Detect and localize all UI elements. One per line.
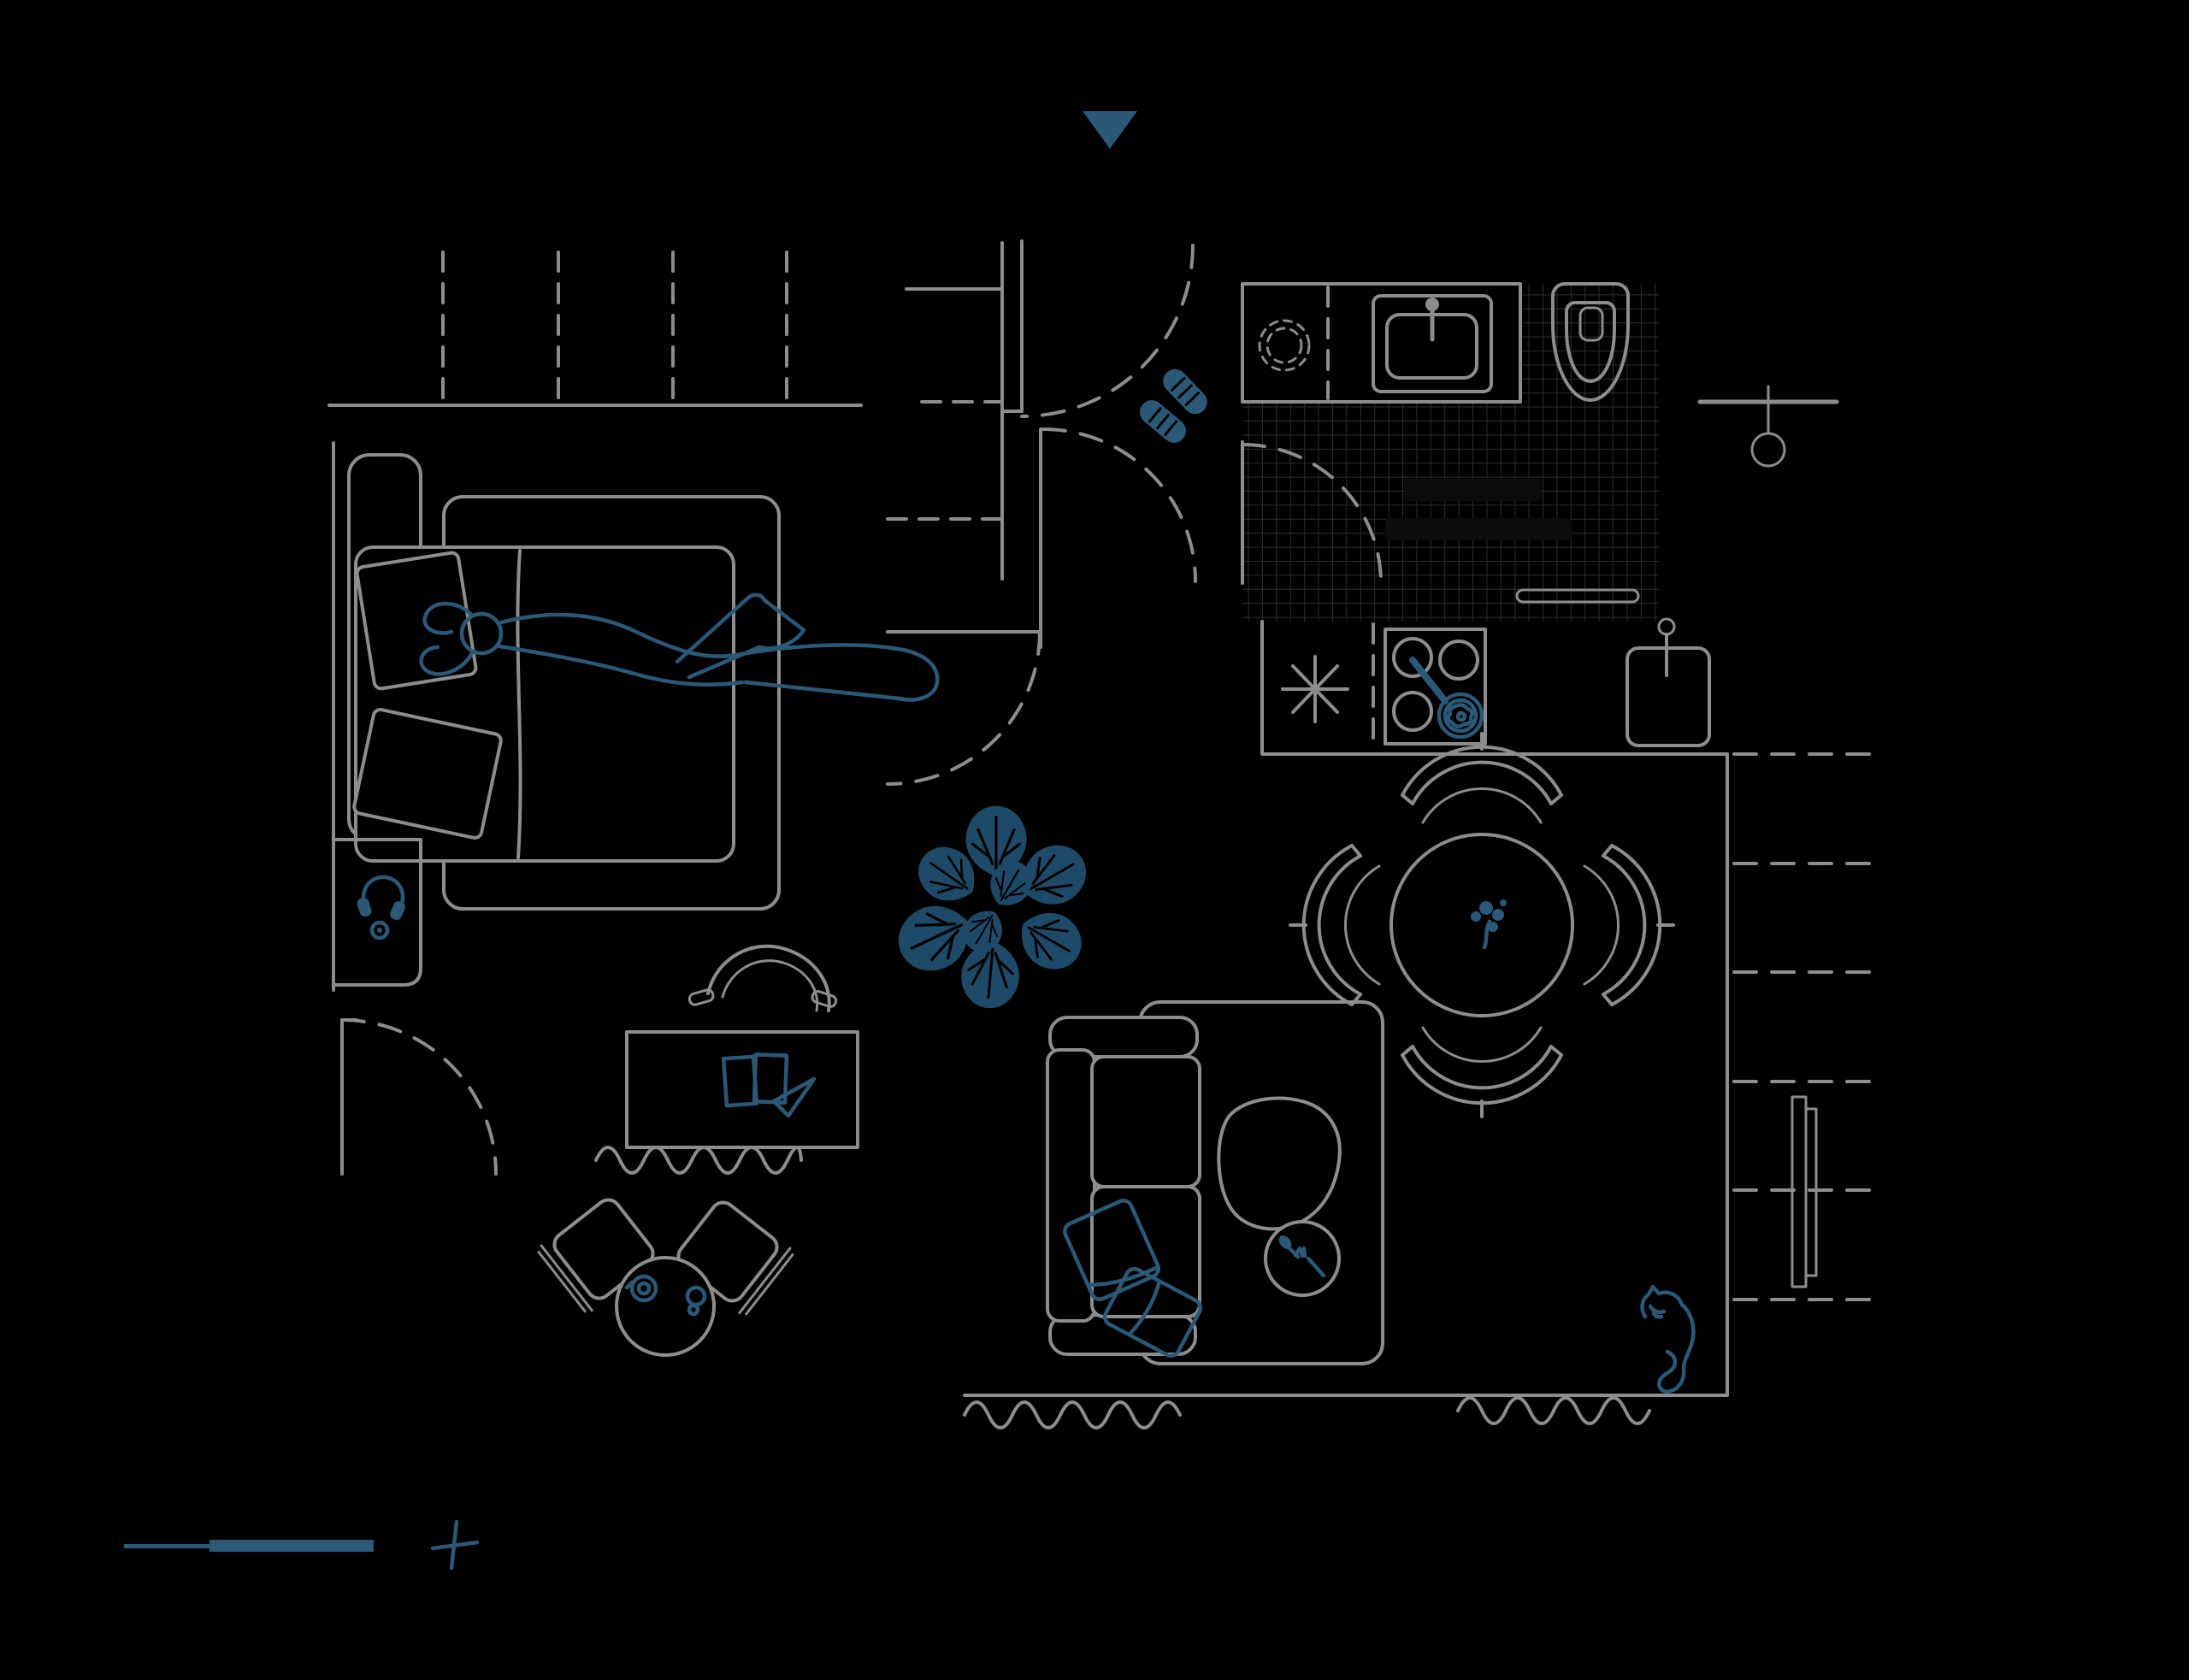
cat-icon: [1643, 1287, 1694, 1392]
plus-marker-icon: [433, 1522, 477, 1568]
faint-label-marks: [1404, 479, 1541, 501]
vanity-counter: [1242, 284, 1520, 402]
monstera-plant-icon: [888, 806, 1096, 1011]
floor-plan-drawing: Studio apartment floor plan - top view l…: [0, 0, 2189, 1680]
sofa: [1047, 1017, 1200, 1354]
entry-closet-shelves: [888, 289, 1002, 519]
scale-bar: [124, 1540, 374, 1552]
wardrobe-dashed-dividers: [329, 252, 861, 405]
breakfast-corner: [537, 1193, 795, 1355]
entrance-marker-icon: [1083, 111, 1137, 149]
cafe-table: [617, 1258, 714, 1355]
kitchen: [1262, 619, 1727, 754]
entry-wall: [1002, 241, 1041, 647]
desk: [627, 1032, 858, 1147]
dining-chair-east: [1584, 846, 1673, 1005]
slippers-icon: [1135, 364, 1212, 448]
floor-plan-canvas: Studio apartment floor plan - top view l…: [0, 0, 2189, 1680]
dining-area: [1290, 734, 1673, 1117]
bathroom: [1242, 284, 1837, 622]
bed: [353, 547, 734, 861]
dining-chair-south: [1402, 1028, 1561, 1117]
coffee-table: [1218, 1098, 1340, 1229]
dining-chair-west: [1290, 846, 1379, 1005]
living-area: [1047, 1002, 1383, 1364]
faint-label-marks: [1385, 518, 1572, 540]
side-table: [1266, 1222, 1339, 1295]
headphones-icon: [356, 877, 407, 938]
bedroom-door-swing-icon: [342, 1020, 496, 1174]
bedroom-furniture: [335, 455, 937, 985]
dining-table: [1391, 834, 1572, 1016]
desk-chair: [688, 946, 837, 1011]
kitchen-sink-icon: [1627, 619, 1709, 746]
dining-chair-north: [1402, 734, 1561, 822]
study-corner: [627, 946, 858, 1147]
living-door-swing-icon: [888, 632, 1041, 784]
towel-rail-icon: [1700, 386, 1837, 466]
asterisk-symbol: [1283, 657, 1348, 722]
